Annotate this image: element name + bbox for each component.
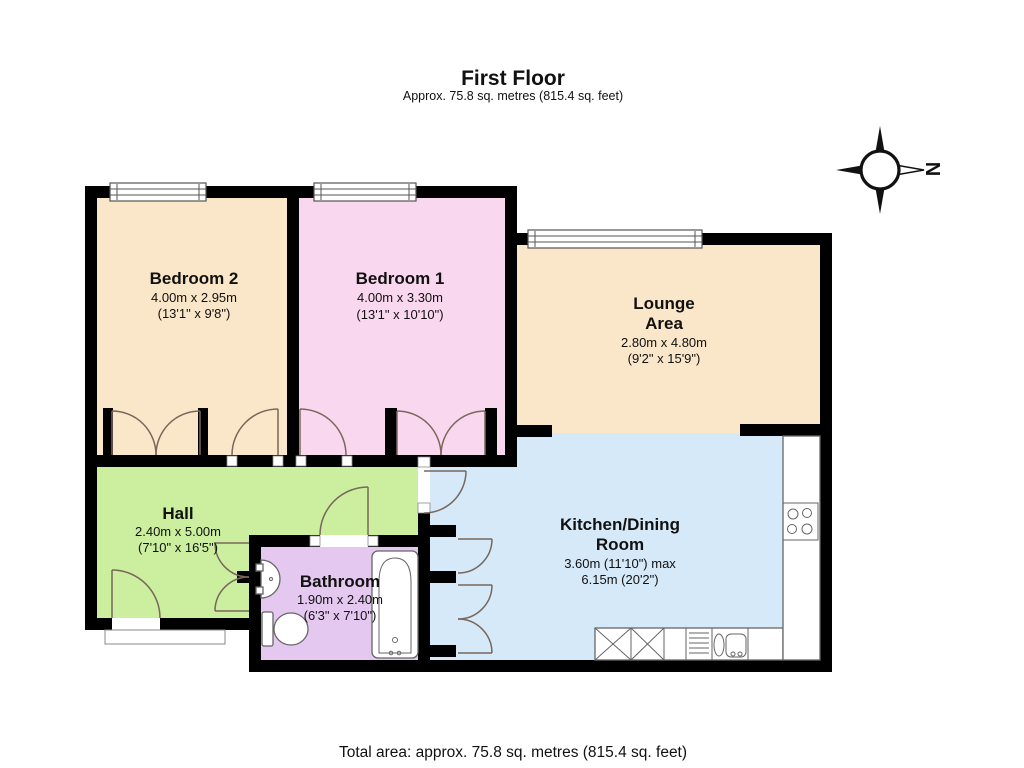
wall-left xyxy=(85,186,97,630)
room-name-line2: Room xyxy=(596,535,644,554)
room-dim-metric: 4.00m x 3.30m xyxy=(357,290,443,305)
cupboard-stub-2 xyxy=(430,571,456,583)
compass-north-label: N xyxy=(921,162,943,176)
wall-bathroom-left xyxy=(249,535,261,660)
wall-stub-lounge-right xyxy=(740,424,820,436)
room-name: Hall xyxy=(162,504,193,523)
wall-bedroom1-lounge xyxy=(505,198,517,467)
window-bedroom2 xyxy=(110,183,206,201)
jamb xyxy=(273,456,283,466)
window-lounge xyxy=(528,230,702,248)
room-name-line1: Lounge xyxy=(633,294,694,313)
window-frame xyxy=(314,183,416,201)
kitchen-counter-right xyxy=(783,436,820,660)
window-frame xyxy=(110,183,206,201)
compass-circle xyxy=(861,151,899,189)
wall-stub-lounge-left xyxy=(517,425,552,437)
room-dim-metric: 4.00m x 2.95m xyxy=(151,290,237,305)
wall-right xyxy=(820,233,832,672)
room-name: Bedroom 2 xyxy=(150,269,239,288)
jamb xyxy=(296,456,306,466)
cupboard-stub-3 xyxy=(430,645,456,657)
counter-outline xyxy=(783,436,820,660)
basin-tap xyxy=(256,564,263,571)
room-dim-metric: 2.80m x 4.80m xyxy=(621,335,707,350)
room-name-line1: Kitchen/Dining xyxy=(560,515,680,534)
room-dim-imperial: 6.15m (20'2") xyxy=(581,572,658,587)
room-name: Bedroom 1 xyxy=(356,269,445,288)
jamb xyxy=(342,456,352,466)
page-title: First Floor xyxy=(461,67,565,90)
entrance-threshold xyxy=(105,630,225,644)
wall-hall-bottom-left xyxy=(85,618,112,630)
jamb xyxy=(310,536,320,546)
room-dim-imperial: (13'1" x 10'10") xyxy=(356,307,443,322)
room-fill-bedroom2 xyxy=(97,198,287,455)
jamb xyxy=(418,503,430,513)
window-bedroom1 xyxy=(314,183,416,201)
label-bedroom1: Bedroom 1 4.00m x 3.30m (13'1" x 10'10") xyxy=(356,269,445,322)
jamb xyxy=(227,456,237,466)
jamb xyxy=(418,457,430,467)
closet1-jamb-left xyxy=(385,408,397,455)
floor-plan-svg: Bedroom 2 4.00m x 2.95m (13'1" x 9'8") B… xyxy=(0,0,1024,768)
room-name-line2: Area xyxy=(645,314,683,333)
total-area-text: Total area: approx. 75.8 sq. metres (815… xyxy=(339,744,687,761)
toilet xyxy=(262,612,308,646)
room-dim-imperial: (7'10" x 16'5") xyxy=(138,540,218,555)
room-dim-metric: 1.90m x 2.40m xyxy=(297,592,383,607)
room-dim-imperial: (9'2" x 15'9") xyxy=(628,351,701,366)
room-dim-metric: 2.40m x 5.00m xyxy=(135,524,221,539)
label-bathroom: Bathroom 1.90m x 2.40m (6'3" x 7'10") xyxy=(297,572,383,623)
room-dim-metric: 3.60m (11'10") max xyxy=(564,556,676,571)
room-name: Bathroom xyxy=(300,572,380,591)
jamb xyxy=(368,536,378,546)
closet1-jamb-right xyxy=(485,408,497,455)
kitchen-counter-bottom xyxy=(595,628,783,660)
room-dim-imperial: (6'3" x 7'10") xyxy=(304,608,377,623)
label-bedroom2: Bedroom 2 4.00m x 2.95m (13'1" x 9'8") xyxy=(150,269,239,321)
wall-bedroom-divider xyxy=(287,198,299,455)
floor-plan-page: Bedroom 2 4.00m x 2.95m (13'1" x 9'8") B… xyxy=(0,0,1024,768)
wall-hall-bottom-right xyxy=(160,618,253,630)
page-subtitle: Approx. 75.8 sq. metres (815.4 sq. feet) xyxy=(403,89,623,103)
cupboard-stub-1 xyxy=(430,525,456,537)
toilet-cistern xyxy=(262,612,273,646)
room-dim-imperial: (13'1" x 9'8") xyxy=(158,306,231,321)
basin-tap xyxy=(256,587,263,594)
room-fill-bedroom1 xyxy=(299,198,505,455)
window-frame xyxy=(528,230,702,248)
wall-bottom xyxy=(249,660,832,672)
